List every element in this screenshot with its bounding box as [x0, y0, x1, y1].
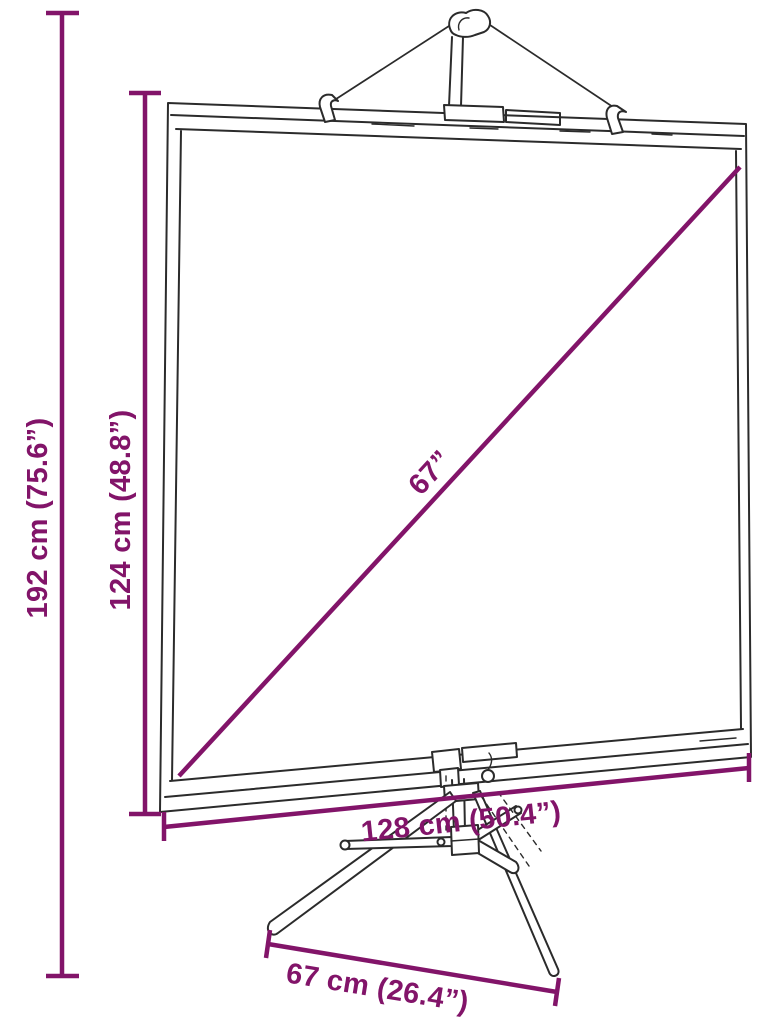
- hanger-base-plate: [444, 105, 504, 122]
- screen-height-label: 124 cm (48.8”): [105, 410, 137, 611]
- base-depth-label: 67 cm (26.4”): [284, 957, 471, 1018]
- base-depth-tick-left: [266, 930, 270, 958]
- base-depth-tick-right: [555, 978, 559, 1006]
- latch-knob: [482, 770, 494, 782]
- dimension-base-depth: 67 cm (26.4”): [266, 930, 559, 1019]
- carry-hook-icon: [449, 10, 490, 37]
- dimension-screen-height: 124 cm (48.8”): [105, 93, 161, 814]
- product-dimension-diagram: 192 cm (75.6”) 124 cm (48.8”) 67” 128 cm…: [0, 0, 775, 1023]
- hanger-wire-left: [333, 26, 449, 101]
- diagram-drawing: 192 cm (75.6”) 124 cm (48.8”) 67” 128 cm…: [0, 0, 775, 1023]
- screen-frame-outline: [160, 103, 751, 812]
- hanger-wire-right: [487, 23, 619, 111]
- total-height-label: 192 cm (75.6”): [22, 418, 54, 619]
- projection-screen-artwork: [160, 103, 751, 812]
- dimension-total-height: 192 cm (75.6”): [22, 13, 79, 976]
- brace-pivot-left: [341, 841, 350, 850]
- hanger-post: [449, 37, 463, 106]
